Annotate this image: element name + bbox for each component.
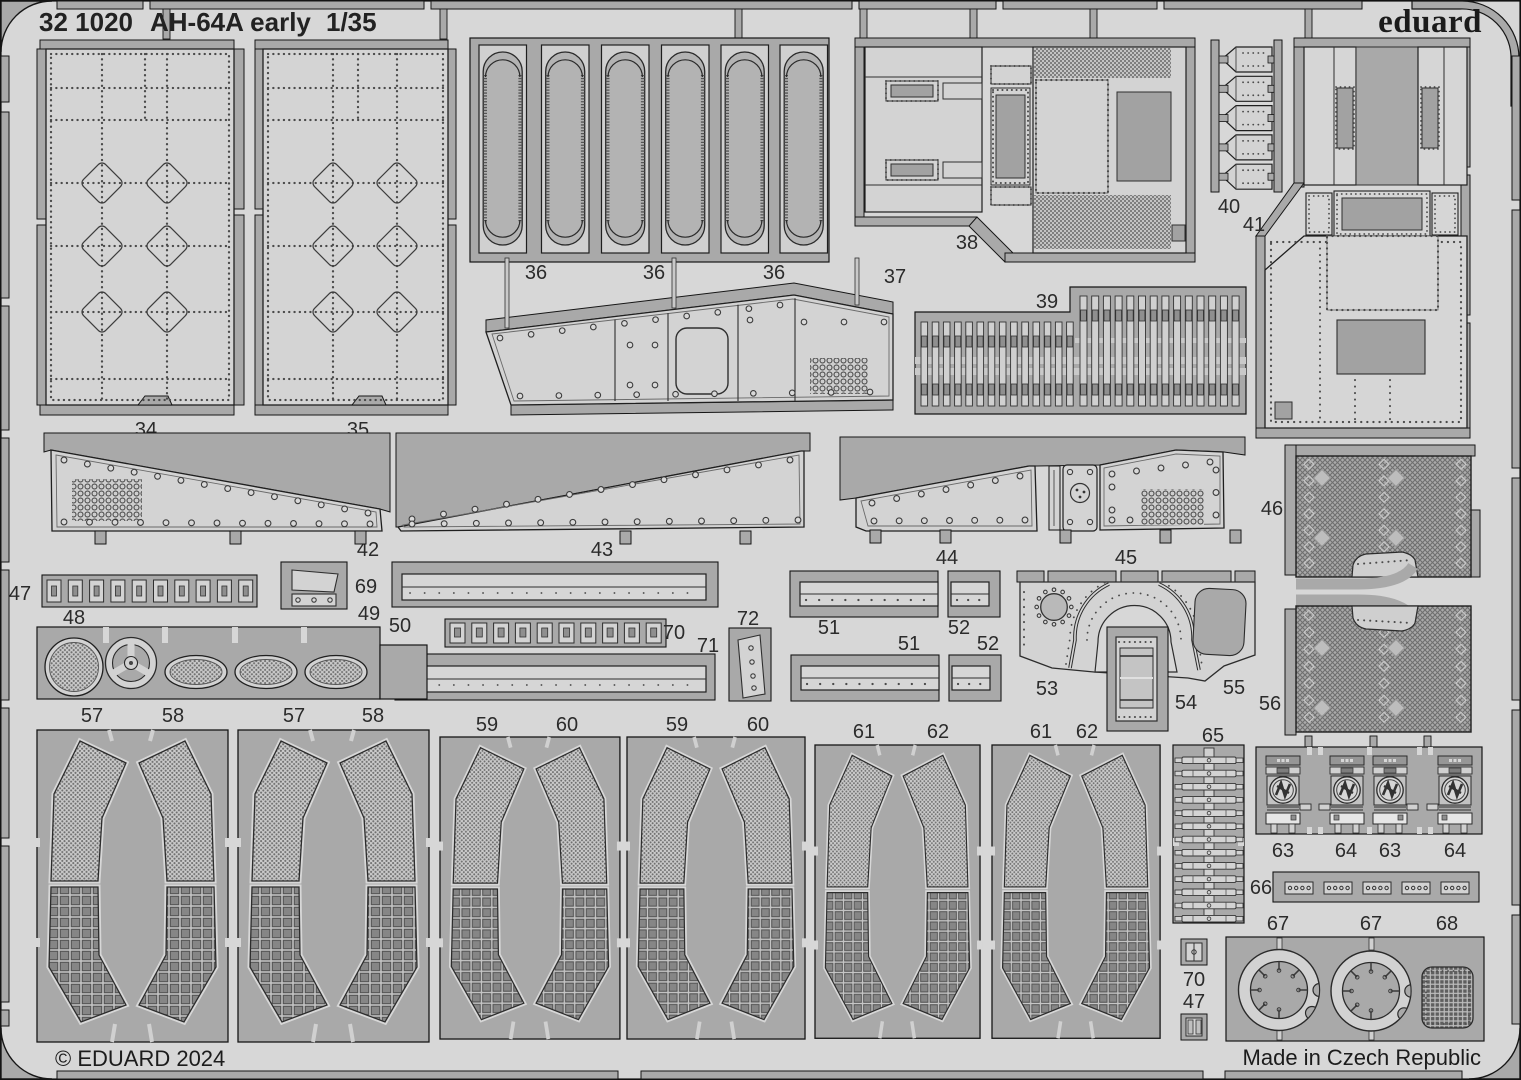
svg-text:AH-64A early: AH-64A early [150, 7, 311, 37]
svg-text:56: 56 [1259, 693, 1281, 715]
svg-text:71: 71 [697, 635, 719, 657]
svg-text:47: 47 [1183, 991, 1205, 1013]
svg-text:51: 51 [898, 633, 920, 655]
svg-text:50: 50 [389, 615, 411, 637]
svg-text:64: 64 [1444, 840, 1466, 862]
svg-text:72: 72 [737, 608, 759, 630]
svg-text:40: 40 [1218, 196, 1240, 218]
svg-text:49: 49 [358, 603, 380, 625]
svg-text:63: 63 [1379, 840, 1401, 862]
svg-text:32 1020: 32 1020 [39, 7, 133, 37]
svg-text:36: 36 [763, 262, 785, 284]
svg-text:37: 37 [884, 266, 906, 288]
svg-text:60: 60 [747, 714, 769, 736]
svg-text:Made in Czech Republic: Made in Czech Republic [1243, 1045, 1481, 1070]
svg-text:51: 51 [818, 617, 840, 639]
svg-text:60: 60 [556, 714, 578, 736]
svg-text:58: 58 [162, 705, 184, 727]
svg-text:41: 41 [1243, 214, 1265, 236]
svg-text:70: 70 [663, 622, 685, 644]
svg-text:53: 53 [1036, 678, 1058, 700]
svg-text:59: 59 [476, 714, 498, 736]
svg-text:63: 63 [1272, 840, 1294, 862]
svg-text:43: 43 [591, 539, 613, 561]
svg-text:59: 59 [666, 714, 688, 736]
svg-text:48: 48 [63, 607, 85, 629]
svg-text:52: 52 [977, 633, 999, 655]
svg-text:67: 67 [1267, 913, 1289, 935]
svg-text:38: 38 [956, 232, 978, 254]
svg-text:64: 64 [1335, 840, 1357, 862]
svg-text:66: 66 [1250, 877, 1272, 899]
svg-text:eduard: eduard [1378, 4, 1482, 40]
svg-text:57: 57 [81, 705, 103, 727]
svg-text:61: 61 [853, 721, 875, 743]
svg-text:55: 55 [1223, 677, 1245, 699]
svg-text:69: 69 [355, 576, 377, 598]
svg-text:52: 52 [948, 617, 970, 639]
svg-text:65: 65 [1202, 725, 1224, 747]
svg-text:36: 36 [525, 262, 547, 284]
svg-text:45: 45 [1115, 547, 1137, 569]
svg-text:47: 47 [9, 583, 31, 605]
svg-text:61: 61 [1030, 721, 1052, 743]
svg-text:62: 62 [1076, 721, 1098, 743]
svg-text:62: 62 [927, 721, 949, 743]
svg-text:57: 57 [283, 705, 305, 727]
svg-text:46: 46 [1261, 498, 1283, 520]
svg-text:39: 39 [1036, 291, 1058, 313]
svg-text:58: 58 [362, 705, 384, 727]
svg-text:44: 44 [936, 547, 958, 569]
svg-text:© EDUARD 2024: © EDUARD 2024 [55, 1046, 225, 1071]
svg-text:68: 68 [1436, 913, 1458, 935]
svg-text:1/35: 1/35 [326, 7, 377, 37]
svg-text:54: 54 [1175, 692, 1197, 714]
svg-text:36: 36 [643, 262, 665, 284]
svg-text:67: 67 [1360, 913, 1382, 935]
svg-text:70: 70 [1183, 969, 1205, 991]
